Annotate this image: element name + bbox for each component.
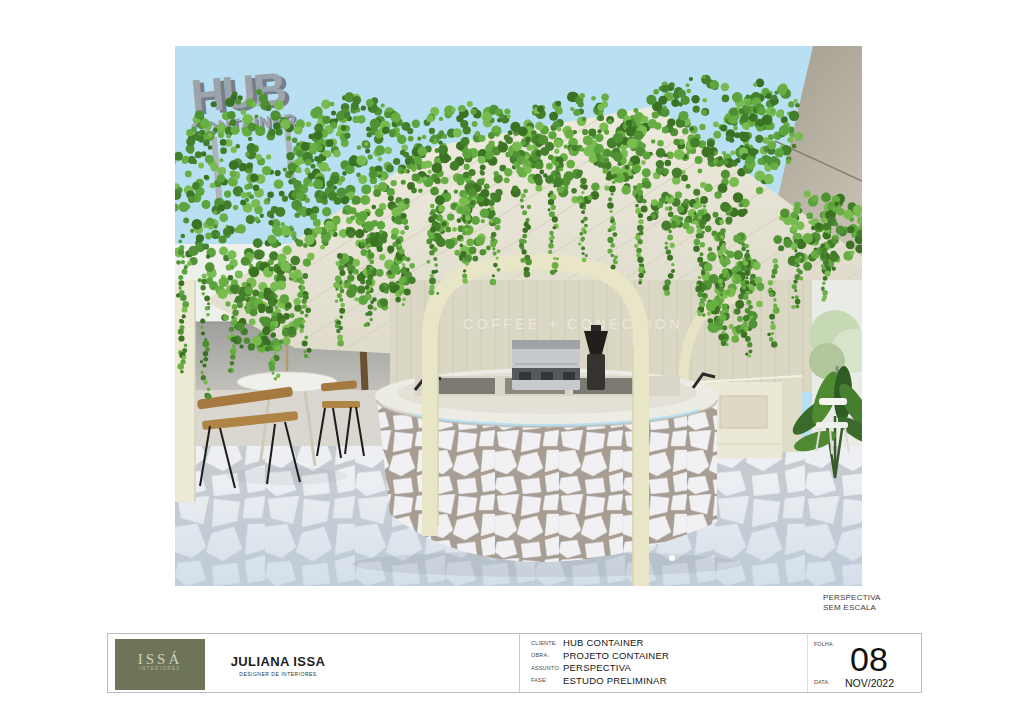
sheet-number: 08 bbox=[850, 643, 888, 675]
espresso-machine bbox=[512, 340, 580, 390]
title-block: ISSÁ INTERIORES JULIANA ISSA DESIGNER DE… bbox=[107, 633, 922, 693]
field-value: HUB CONTAINER bbox=[563, 637, 644, 648]
left-structure-post bbox=[175, 280, 195, 502]
wall-sign-text: COFFEE + CONECTION bbox=[463, 316, 683, 332]
scale-note-line1: PERSPECTIVA bbox=[823, 593, 881, 602]
folha-label: FOLHA: bbox=[814, 641, 834, 647]
field-row-fase: FASE: ESTUDO PRELIMINAR bbox=[519, 675, 807, 688]
field-value: PROJETO CONTAINER bbox=[563, 650, 669, 661]
field-label: FASE: bbox=[531, 675, 563, 684]
field-label: CLIENTE: bbox=[531, 637, 563, 646]
perspective-render: COFFEE + CONECTION bbox=[175, 46, 862, 586]
sheet-info: FOLHA: 08 DATA: NOV/2022 bbox=[807, 634, 923, 692]
light-dot bbox=[669, 555, 675, 561]
coffee-grinder bbox=[584, 325, 608, 390]
field-label: OBRA: bbox=[531, 650, 563, 659]
scale-note: PERSPECTIVA SEM ESCALA bbox=[823, 593, 881, 612]
field-label: ASSUNTO: bbox=[531, 662, 563, 671]
designer-block: JULIANA ISSA DESIGNER DE INTERIORES bbox=[178, 654, 378, 677]
project-fields: CLIENTE: HUB CONTAINER OBRA: PROJETO CON… bbox=[519, 637, 807, 687]
designer-role: DESIGNER DE INTERIORES bbox=[178, 671, 378, 677]
data-label: DATA: bbox=[814, 679, 829, 685]
scale-note-line2: SEM ESCALA bbox=[823, 603, 876, 612]
designer-name: JULIANA ISSA bbox=[178, 654, 378, 669]
sheet-date: NOV/2022 bbox=[845, 677, 894, 689]
field-row-cliente: CLIENTE: HUB CONTAINER bbox=[519, 637, 807, 650]
field-value: ESTUDO PRELIMINAR bbox=[563, 675, 667, 686]
field-value: PERSPECTIVA bbox=[563, 662, 631, 673]
field-row-assunto: ASSUNTO: PERSPECTIVA bbox=[519, 662, 807, 675]
field-row-obra: OBRA: PROJETO CONTAINER bbox=[519, 650, 807, 663]
